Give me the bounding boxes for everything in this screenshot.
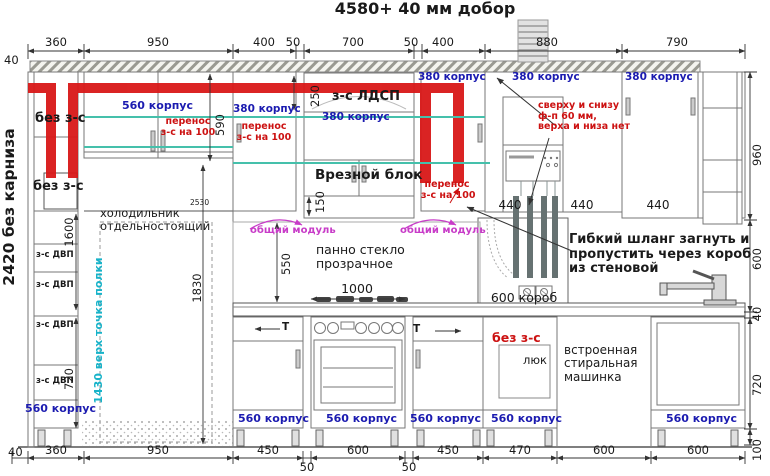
dim-right-100: 100 bbox=[751, 436, 764, 464]
note-perenos-1: переносз-с на 100 bbox=[160, 117, 216, 138]
dim-bottom-50a: 50 bbox=[295, 461, 319, 474]
label-cab560-column: 560 корпус bbox=[25, 403, 85, 415]
note-shelf-top: 1430 верх точка полки bbox=[93, 243, 105, 418]
dim-440a: 440 bbox=[492, 199, 528, 212]
dim-1830: 1830 bbox=[191, 270, 204, 306]
label-no-zs-2: без з-с bbox=[33, 180, 84, 195]
label-cab380-b: 380 корпус bbox=[322, 112, 382, 124]
dim-550: 550 bbox=[280, 250, 293, 278]
dim-250: 250 bbox=[309, 82, 322, 110]
note-perenos-2: переносз-с на 100 bbox=[236, 122, 292, 143]
label-cab560-base1: 560 корпус bbox=[238, 413, 298, 425]
dim-bottom-950: 950 bbox=[136, 444, 180, 457]
label-cab560-base4: 560 корпус bbox=[491, 413, 551, 425]
dim-top-400a: 400 bbox=[242, 36, 286, 49]
label-common-module-2: общий модуль bbox=[400, 225, 468, 236]
label-cab560-base2: 560 корпус bbox=[326, 413, 386, 425]
microwave-drawing bbox=[506, 151, 560, 181]
label-cab560-base3: 560 корпус bbox=[410, 413, 470, 425]
label-fridge: холодильникотдельностоящий bbox=[100, 207, 210, 233]
kitchen-elevation-drawing: 4580+ 40 мм добор 40 360 950 400 50 700 … bbox=[0, 0, 770, 476]
dim-bottom-600b: 600 bbox=[582, 444, 626, 457]
dim-top-50b: 50 bbox=[399, 36, 423, 49]
label-cab380-e: 380 корпус bbox=[625, 72, 685, 84]
wall-cabinet-880 bbox=[485, 72, 622, 212]
label-dvp-1: з-с ДВП bbox=[36, 251, 74, 261]
label-cab380-d: 380 корпус bbox=[512, 72, 572, 84]
label-cab560-wall: 560 корпус bbox=[122, 100, 182, 112]
dim-440b: 440 bbox=[564, 199, 600, 212]
dim-right-960: 960 bbox=[751, 140, 764, 170]
dim-150: 150 bbox=[314, 188, 327, 216]
dim-right-600: 600 bbox=[751, 244, 764, 274]
dim-1600: 1600 bbox=[63, 214, 76, 250]
label-dvp-4: з-с ДВП bbox=[36, 377, 74, 387]
note-hose: Гибкий шланг загнуть ипропустить через к… bbox=[569, 233, 751, 277]
label-no-zs-red: без з-с bbox=[492, 331, 541, 345]
dim-bottom-360: 360 bbox=[34, 444, 78, 457]
wall-height-label: 2420 без карниза bbox=[1, 82, 18, 332]
label-korob: 600 короб bbox=[486, 291, 562, 305]
dim-bottom-450a: 450 bbox=[246, 444, 290, 457]
label-ldsp: з-с ЛДСП bbox=[332, 90, 400, 105]
dim-top-950: 950 bbox=[136, 36, 180, 49]
dim-top-790: 790 bbox=[655, 36, 699, 49]
label-glass-panel: панно стеклопрозрачное bbox=[316, 243, 405, 271]
dim-bottom-600c: 600 bbox=[676, 444, 720, 457]
drawing-title: 4580+ 40 мм добор bbox=[290, 0, 560, 18]
label-common-module-1: общий модуль bbox=[250, 225, 318, 236]
label-vrez-block: Врезной блок bbox=[315, 168, 422, 183]
dim-top-700: 700 bbox=[331, 36, 375, 49]
dim-top-880: 880 bbox=[525, 36, 569, 49]
label-drawer-t-2: Т bbox=[413, 324, 420, 336]
dim-top-360: 360 bbox=[34, 36, 78, 49]
label-drawer-t-1: Т bbox=[282, 322, 289, 334]
dim-bottom-50b: 50 bbox=[397, 461, 421, 474]
dim-bottom-450b: 450 bbox=[426, 444, 470, 457]
dim-1000: 1000 bbox=[330, 282, 384, 296]
dim-top-50a: 50 bbox=[281, 36, 305, 49]
dim-top-400b: 400 bbox=[421, 36, 465, 49]
label-hatch-door: люк bbox=[513, 354, 557, 367]
label-cab380-a: 380 корпус bbox=[233, 104, 293, 116]
label-dvp-3: з-с ДВП bbox=[36, 321, 74, 331]
label-washer: встроеннаястиральнаямашинка bbox=[564, 344, 638, 384]
ceiling-filler-strip bbox=[30, 61, 700, 72]
dim-right-720: 720 bbox=[751, 370, 764, 400]
label-cab380-c: 380 корпус bbox=[418, 72, 478, 84]
note-perenos-3: переносз-с на 100 bbox=[421, 180, 473, 201]
dim-bottom-offset: 40 bbox=[8, 446, 23, 459]
dim-top-offset: 40 bbox=[4, 54, 19, 67]
label-cab560-base5: 560 корпус bbox=[666, 413, 726, 425]
dim-bottom-600a: 600 bbox=[336, 444, 380, 457]
label-dvp-2: з-с ДВП bbox=[36, 281, 74, 291]
dim-right-40: 40 bbox=[751, 303, 764, 325]
dim-bottom-470: 470 bbox=[498, 444, 542, 457]
note-facade: сверху и снизуф-п 60 мм,верха и низа нет bbox=[538, 101, 630, 133]
dim-440c: 440 bbox=[640, 199, 676, 212]
label-no-zs-1: без з-с bbox=[35, 112, 86, 127]
